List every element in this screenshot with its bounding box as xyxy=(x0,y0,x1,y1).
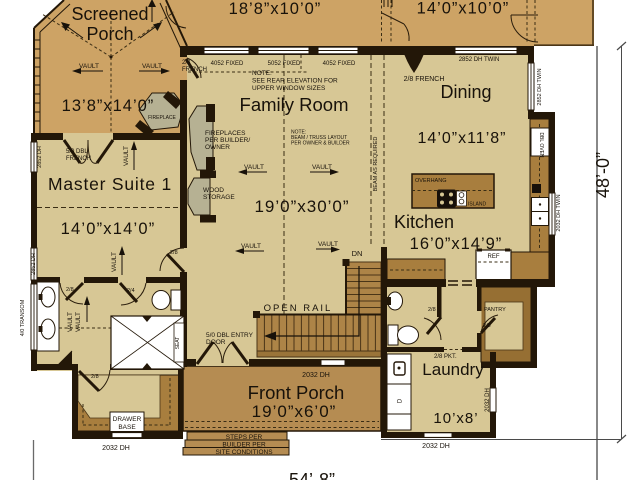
svg-text:48’-0”: 48’-0” xyxy=(593,152,613,198)
svg-text:2/4: 2/4 xyxy=(127,288,135,294)
svg-text:BUILDER PER: BUILDER PER xyxy=(222,442,266,449)
svg-text:2852 DH TWIN: 2852 DH TWIN xyxy=(537,68,543,105)
svg-text:4052 FIXED: 4052 FIXED xyxy=(211,61,244,67)
svg-text:BEAM AS REQUIRED: BEAM AS REQUIRED xyxy=(373,137,379,192)
svg-text:SEAT: SEAT xyxy=(175,337,181,350)
svg-text:5/0 DBL: 5/0 DBL xyxy=(66,149,88,155)
svg-text:OPEN RAIL: OPEN RAIL xyxy=(264,303,333,314)
svg-text:PER BUILDER/: PER BUILDER/ xyxy=(205,137,250,144)
svg-text:VAULT: VAULT xyxy=(75,312,82,332)
svg-text:2032 DH: 2032 DH xyxy=(302,372,330,379)
svg-text:OWNER: OWNER xyxy=(205,144,230,151)
svg-text:54’-8”: 54’-8” xyxy=(289,470,335,480)
svg-text:4/0 TRANSOM: 4/0 TRANSOM xyxy=(20,299,26,336)
svg-text:VAULT: VAULT xyxy=(142,63,162,70)
svg-text:UPPER WINDOW SIZES: UPPER WINDOW SIZES xyxy=(252,85,326,92)
svg-text:19’0”x6’0”: 19’0”x6’0” xyxy=(252,402,337,421)
svg-text:DN: DN xyxy=(352,249,363,258)
svg-text:VAULT: VAULT xyxy=(318,241,338,248)
svg-text:10’x8’: 10’x8’ xyxy=(433,410,478,427)
svg-text:2032 DH: 2032 DH xyxy=(422,443,450,450)
svg-text:16’0”x14’9”: 16’0”x14’9” xyxy=(410,235,503,253)
svg-text:Family Room: Family Room xyxy=(240,94,349,115)
svg-text:VAULT: VAULT xyxy=(67,312,74,332)
svg-text:19’0”x30’0”: 19’0”x30’0” xyxy=(254,197,349,216)
svg-text:2/8 PKT.: 2/8 PKT. xyxy=(434,354,457,360)
svg-text:2852 DH: 2852 DH xyxy=(31,253,37,275)
svg-text:DRAWER: DRAWER xyxy=(113,416,142,423)
svg-text:Master Suite 1: Master Suite 1 xyxy=(48,174,172,194)
svg-text:5/0 DBL ENTRY: 5/0 DBL ENTRY xyxy=(206,332,254,339)
svg-text:14’0”x10’0”: 14’0”x10’0” xyxy=(417,0,510,18)
svg-text:2032 DH: 2032 DH xyxy=(485,388,491,412)
svg-text:Kitchen: Kitchen xyxy=(394,212,454,232)
svg-text:STORAGE: STORAGE xyxy=(203,194,235,201)
svg-text:2/8: 2/8 xyxy=(170,250,178,256)
svg-text:ISLAND: ISLAND xyxy=(468,202,486,208)
svg-text:SEE REAR ELEVATION FOR: SEE REAR ELEVATION FOR xyxy=(252,78,338,85)
svg-text:2852 DH TWIN: 2852 DH TWIN xyxy=(459,57,500,63)
svg-text:DOOR: DOOR xyxy=(206,339,226,346)
svg-text:4052 FIXED: 4052 FIXED xyxy=(323,61,356,67)
svg-text:14’0”x11’8”: 14’0”x11’8” xyxy=(418,130,507,147)
svg-text:13’8”x14’0”: 13’8”x14’0” xyxy=(62,97,155,115)
svg-text:2/8: 2/8 xyxy=(428,307,436,313)
svg-text:FRENCH: FRENCH xyxy=(182,67,207,73)
svg-text:OVERHANG: OVERHANG xyxy=(415,178,446,184)
svg-text:18’8”x10’0”: 18’8”x10’0” xyxy=(229,0,322,18)
svg-text:2032 DH TWIN: 2032 DH TWIN xyxy=(556,194,562,231)
svg-text:Porch: Porch xyxy=(86,24,133,44)
svg-text:2/8: 2/8 xyxy=(483,323,491,329)
svg-text:Front Porch: Front Porch xyxy=(248,382,345,403)
svg-text:2/8: 2/8 xyxy=(91,374,99,380)
svg-text:FRENCH: FRENCH xyxy=(66,156,91,162)
svg-text:STEPS PER: STEPS PER xyxy=(226,434,263,441)
svg-text:2/8: 2/8 xyxy=(182,60,191,66)
svg-text:PANTRY: PANTRY xyxy=(484,307,506,313)
svg-text:FIREPLACES: FIREPLACES xyxy=(205,130,246,137)
svg-text:VAULT: VAULT xyxy=(312,164,332,171)
svg-text:SITE CONDITIONS: SITE CONDITIONS xyxy=(215,449,273,456)
svg-text:D: D xyxy=(398,398,404,403)
svg-text:VAULT: VAULT xyxy=(123,146,130,166)
svg-text:NOTE:: NOTE: xyxy=(252,70,272,77)
svg-text:5052 FIXED: 5052 FIXED xyxy=(268,61,301,67)
svg-text:VAULT: VAULT xyxy=(244,164,264,171)
svg-text:Laundry: Laundry xyxy=(422,360,484,379)
svg-text:REF: REF xyxy=(488,254,500,260)
svg-text:VAULT: VAULT xyxy=(79,63,99,70)
svg-text:2032 DH: 2032 DH xyxy=(102,445,130,452)
svg-text:BASE: BASE xyxy=(118,424,136,431)
svg-text:2/8 FRENCH: 2/8 FRENCH xyxy=(404,76,445,83)
svg-text:FIREPLACE: FIREPLACE xyxy=(148,115,176,121)
svg-text:DBL OVEN: DBL OVEN xyxy=(538,132,544,157)
svg-text:2852 DH: 2852 DH xyxy=(37,146,43,168)
svg-text:VAULT: VAULT xyxy=(241,243,261,250)
svg-text:2/8: 2/8 xyxy=(66,287,74,293)
svg-text:WOOD: WOOD xyxy=(203,187,224,194)
svg-text:VAULT: VAULT xyxy=(111,252,118,272)
svg-text:Screened: Screened xyxy=(71,4,148,24)
svg-text:Dining: Dining xyxy=(440,82,491,102)
svg-text:PER OWNER & BUILDER: PER OWNER & BUILDER xyxy=(291,141,350,147)
svg-text:14’0”x14’0”: 14’0”x14’0” xyxy=(61,220,156,238)
